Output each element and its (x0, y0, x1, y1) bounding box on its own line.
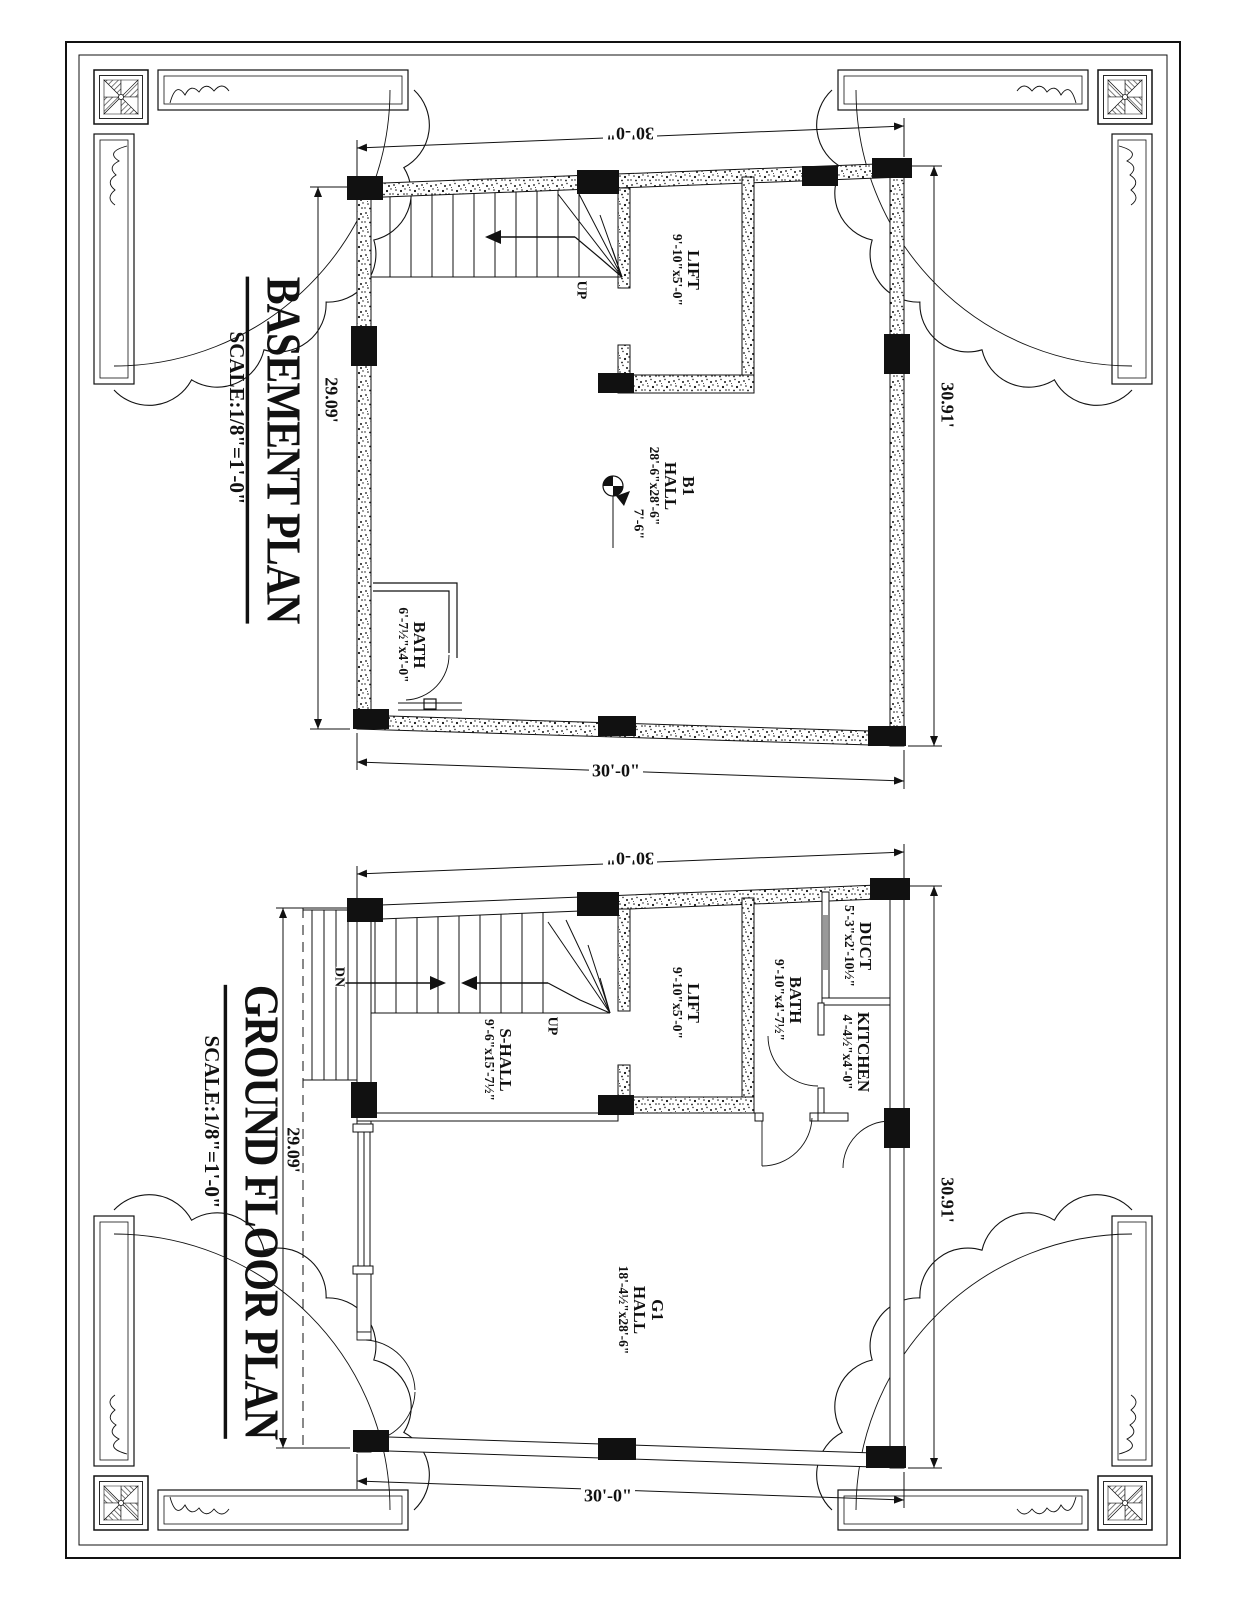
room-size: 18'-4½"x28'-6" (616, 1266, 630, 1355)
room-name: LIFT (684, 967, 702, 1039)
room-size: 6'-7½"x4'-0" (396, 607, 410, 682)
ground-s-hall-label: S-HALL 9'-6"x15'-7½" (482, 1019, 514, 1101)
ground-window (353, 1124, 373, 1274)
ground-stairs (303, 908, 610, 1448)
room-size: 9'-6"x15'-7½" (482, 1019, 496, 1101)
ground-kitchen-label: KITCHEN 4'-4½"x4'-0" (840, 1012, 872, 1092)
ground-plan-scale: SCALE:1/8"=1'-0" (201, 1036, 223, 1209)
ground-dim-left: 29.09' (283, 1124, 302, 1176)
ground-bath-label: BATH 9'-10"x4'-7½" (772, 959, 804, 1041)
basement-plan-title: BASEMENT PLAN (246, 277, 308, 624)
room-name: KITCHEN (854, 1012, 872, 1092)
ground-hall-label: G1 HALL 18'-4½"x28'-6" (616, 1266, 666, 1355)
floor-plan-drawing (0, 0, 1246, 1600)
basement-level-marker (603, 476, 630, 548)
basement-stairs-up-label: UP (573, 281, 588, 300)
basement-dim-right: 30.91' (937, 379, 956, 431)
room-size: 9'-10"x5'-0" (670, 234, 684, 306)
basement-dim-top: 30'-0" (603, 123, 657, 142)
ground-dim-right: 30.91' (937, 1174, 956, 1226)
basement-hall-label: B1 HALL 28'-6"x28'-6" (647, 447, 697, 526)
ground-duct-label: DUCT 5'-3"x2'-10½" (842, 905, 874, 987)
room-name: S-HALL (496, 1019, 514, 1101)
room-name: DUCT (856, 905, 874, 987)
drawing-sheet: BASEMENT PLAN SCALE:1/8"=1'-0" 30'-0" 30… (0, 0, 1246, 1600)
room-size: 5'-3"x2'-10½" (842, 905, 856, 987)
room-name: BATH (786, 959, 804, 1041)
ground-stairs-dn-label: DN (331, 967, 346, 987)
room-name: HALL (661, 447, 679, 526)
room-size: 9'-10"x4'-7½" (772, 959, 786, 1041)
room-size: 28'-6"x28'-6" (647, 447, 661, 526)
basement-bath-label: BATH 6'-7½"x4'-0" (396, 607, 428, 682)
room-size: 9'-10"x5'-0" (670, 967, 684, 1039)
basement-plan-scale: SCALE:1/8"=1'-0" (226, 332, 248, 505)
basement-lift-label: LIFT 9'-10"x5'-0" (670, 234, 702, 306)
ground-dim-top: 30'-0" (603, 848, 657, 867)
room-size: 4'-4½"x4'-0" (840, 1012, 854, 1092)
basement-level-height-label: 7'-6" (630, 509, 645, 539)
room-name: HALL (630, 1266, 648, 1355)
ground-plan-title: GROUND FLOOR PLAN (224, 985, 286, 1439)
room-number: B1 (679, 447, 697, 526)
ground-walls (357, 884, 904, 1468)
basement-stairs (371, 190, 622, 277)
basement-dim-bottom: 30'-0" (589, 761, 643, 780)
basement-walls (357, 163, 904, 746)
room-number: G1 (648, 1266, 666, 1355)
room-name: LIFT (684, 234, 702, 306)
ground-stairs-up-label: UP (544, 1017, 559, 1036)
ground-lift-label: LIFT 9'-10"x5'-0" (670, 967, 702, 1039)
ground-dim-bottom: 30'-0" (581, 1486, 635, 1505)
basement-dim-left: 29.09' (321, 374, 340, 426)
room-name: BATH (410, 607, 428, 682)
